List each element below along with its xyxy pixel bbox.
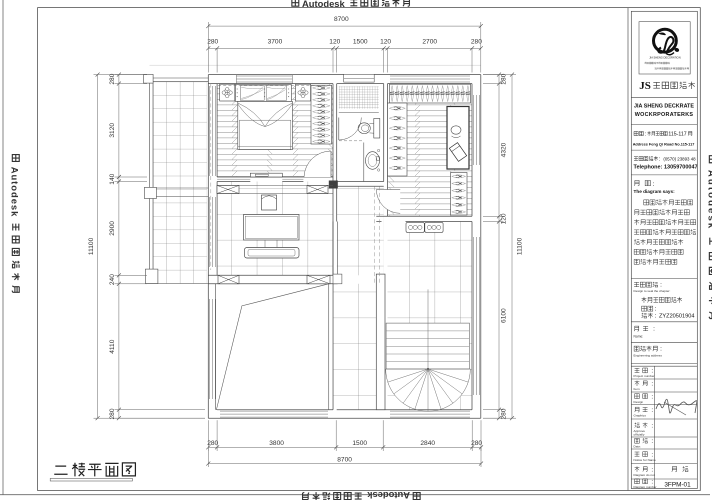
- svg-text:8700: 8700: [337, 456, 352, 463]
- svg-text:JS: JS: [639, 80, 651, 92]
- svg-text:Design to seal the chapter:: Design to seal the chapter:: [634, 289, 671, 293]
- svg-text:11100: 11100: [517, 237, 524, 255]
- svg-text::: :: [651, 423, 653, 430]
- svg-text:8700: 8700: [334, 16, 349, 23]
- svg-text:Address Feng Qi Road No.115-11: Address Feng Qi Road No.115-117: [633, 143, 695, 147]
- svg-text:The diagram says:: The diagram says:: [634, 189, 676, 194]
- svg-text:120: 120: [501, 213, 508, 224]
- svg-text:280: 280: [207, 39, 218, 46]
- svg-text:140: 140: [109, 173, 116, 184]
- svg-text:280: 280: [207, 440, 218, 447]
- svg-text:11100: 11100: [88, 237, 95, 255]
- svg-text:Diagram number: Diagram number: [634, 485, 657, 489]
- svg-text:120: 120: [329, 39, 340, 46]
- svg-text:4110: 4110: [109, 339, 116, 354]
- svg-text:2900: 2900: [109, 221, 116, 236]
- svg-text:(0570) 23893 48: (0570) 23893 48: [663, 157, 696, 162]
- svg-text:3800: 3800: [269, 440, 284, 447]
- svg-text:Design: Design: [634, 400, 644, 404]
- svg-text:3120: 3120: [109, 123, 116, 138]
- svg-text::: :: [659, 157, 661, 163]
- svg-text:Notice for Name: Notice for Name: [634, 458, 657, 462]
- svg-text:JIA SHENG DECORATION: JIA SHENG DECORATION: [649, 55, 680, 59]
- svg-text:Name:: Name:: [634, 335, 644, 339]
- svg-text::: :: [655, 306, 657, 313]
- svg-text:Autodesk: Autodesk: [706, 170, 712, 230]
- svg-text:Date:: Date:: [634, 445, 642, 449]
- svg-text:Autodesk: Autodesk: [367, 490, 411, 500]
- svg-text::: :: [651, 393, 653, 400]
- svg-text:WOCKRPORATERKS: WOCKRPORATERKS: [635, 112, 694, 118]
- svg-text:Engineering address: Engineering address: [634, 354, 663, 358]
- svg-text:280: 280: [109, 73, 116, 84]
- svg-text:280: 280: [501, 73, 508, 84]
- svg-text:Autodesk: Autodesk: [302, 0, 346, 9]
- svg-text::: :: [653, 326, 655, 333]
- svg-text:1500: 1500: [353, 39, 368, 46]
- svg-text:Item: Item: [634, 387, 640, 391]
- svg-text:2840: 2840: [420, 440, 435, 447]
- svg-text:Project number: Project number: [634, 374, 655, 378]
- svg-text:Diagram do not: Diagram do not: [634, 473, 655, 477]
- svg-text::: :: [645, 131, 646, 137]
- svg-text:officially: officially: [634, 432, 645, 436]
- svg-text:120: 120: [380, 39, 391, 46]
- svg-text:3FPM-01: 3FPM-01: [664, 482, 691, 489]
- svg-text:Graphics: Graphics: [634, 413, 647, 417]
- svg-text:280: 280: [471, 440, 482, 447]
- svg-text:Telephone: 13059700047: Telephone: 13059700047: [634, 164, 698, 170]
- svg-text::: :: [651, 381, 653, 388]
- svg-text:1500: 1500: [352, 440, 367, 447]
- svg-text:280: 280: [501, 408, 508, 419]
- svg-text:2700: 2700: [422, 39, 437, 46]
- svg-text:Autodesk: Autodesk: [10, 167, 21, 218]
- svg-text:4320: 4320: [501, 142, 508, 157]
- svg-text:115-117: 115-117: [668, 131, 686, 137]
- svg-text:JIA SHENG DECKRATE: JIA SHENG DECKRATE: [634, 104, 694, 110]
- svg-text::: :: [660, 346, 662, 353]
- svg-text:6100: 6100: [501, 308, 508, 323]
- svg-text::: :: [653, 181, 655, 188]
- svg-text::: :: [660, 282, 662, 289]
- svg-text::: :: [655, 313, 657, 320]
- svg-text:280: 280: [471, 39, 482, 46]
- svg-text:3700: 3700: [268, 39, 283, 46]
- svg-text:280: 280: [109, 408, 116, 419]
- svg-text:240: 240: [109, 274, 116, 285]
- svg-text:ZYZ20501904: ZYZ20501904: [659, 313, 694, 319]
- svg-text::: :: [651, 438, 653, 445]
- svg-text::: :: [651, 407, 653, 414]
